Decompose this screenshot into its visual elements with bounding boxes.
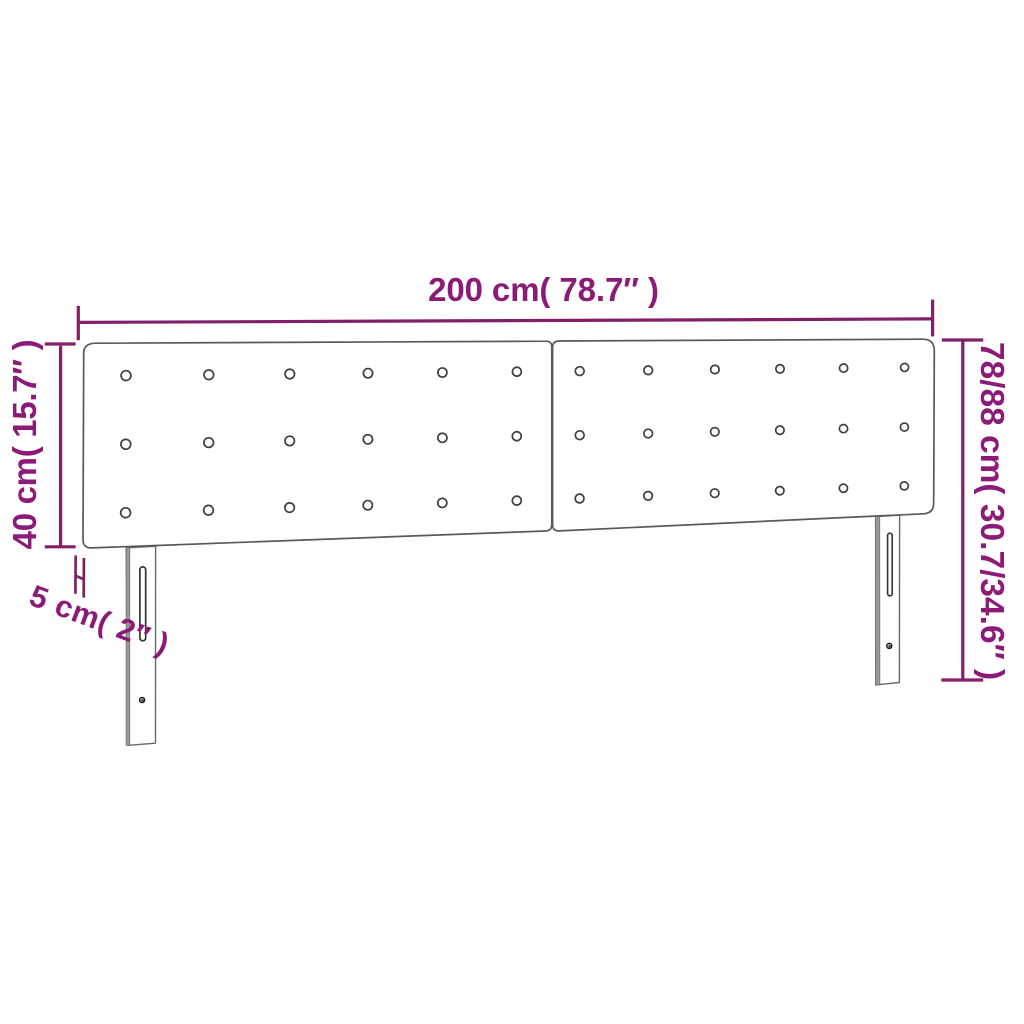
svg-text:200 cm( 78.7″ ): 200 cm( 78.7″ ) (428, 271, 659, 308)
svg-text:78/88 cm( 30.7/34.6″ ): 78/88 cm( 30.7/34.6″ ) (973, 342, 1010, 680)
svg-text:40 cm( 15.7″ ): 40 cm( 15.7″ ) (6, 340, 43, 550)
